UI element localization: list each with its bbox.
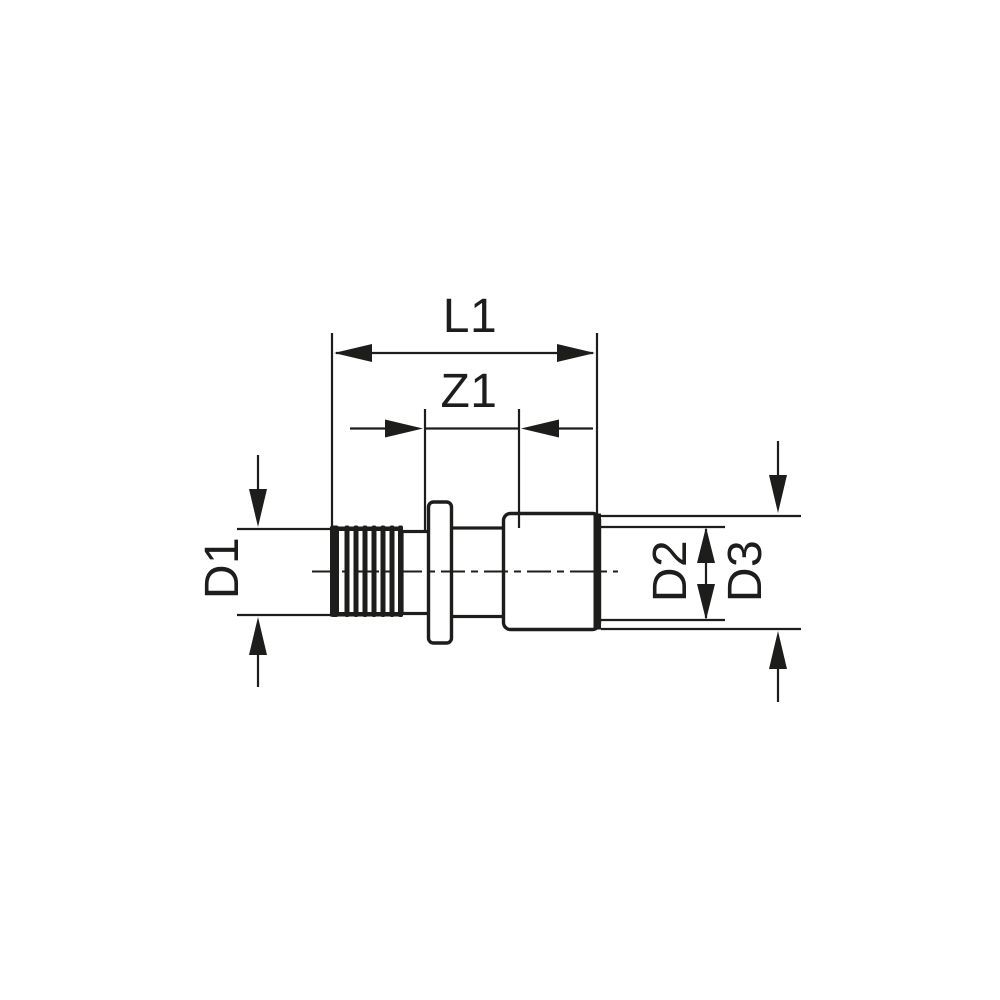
l1-right-arrowhead-icon [557,344,595,362]
d1-label: D1 [196,537,249,599]
d1-bottom-arrowhead-icon [249,617,267,655]
z1-right-arrowhead-icon [521,420,559,438]
z1-label: Z1 [440,365,497,418]
press-sleeve-end-face [594,514,602,630]
dimension-d3: D3 [719,441,787,702]
d3-bottom-arrowhead-icon [769,631,787,669]
d2-bottom-arrowhead-icon [697,584,715,620]
d3-label: D3 [719,540,772,602]
d3-top-arrowhead-icon [769,475,787,513]
d1-top-arrowhead-icon [249,489,267,527]
pipe-fitting-dimension-diagram: L1 Z1 D1 D2 [0,0,1000,1000]
l1-label: L1 [443,290,497,343]
thread-ridge [381,526,386,618]
d2-top-arrowhead-icon [697,527,715,563]
z1-left-arrowhead-icon [385,420,423,438]
dimension-z1: Z1 [350,365,593,533]
d2-label: D2 [644,540,697,602]
l1-left-arrowhead-icon [334,344,372,362]
dimension-d2: D2 [644,527,715,620]
technical-drawing-page: L1 Z1 D1 D2 [0,0,1000,1000]
